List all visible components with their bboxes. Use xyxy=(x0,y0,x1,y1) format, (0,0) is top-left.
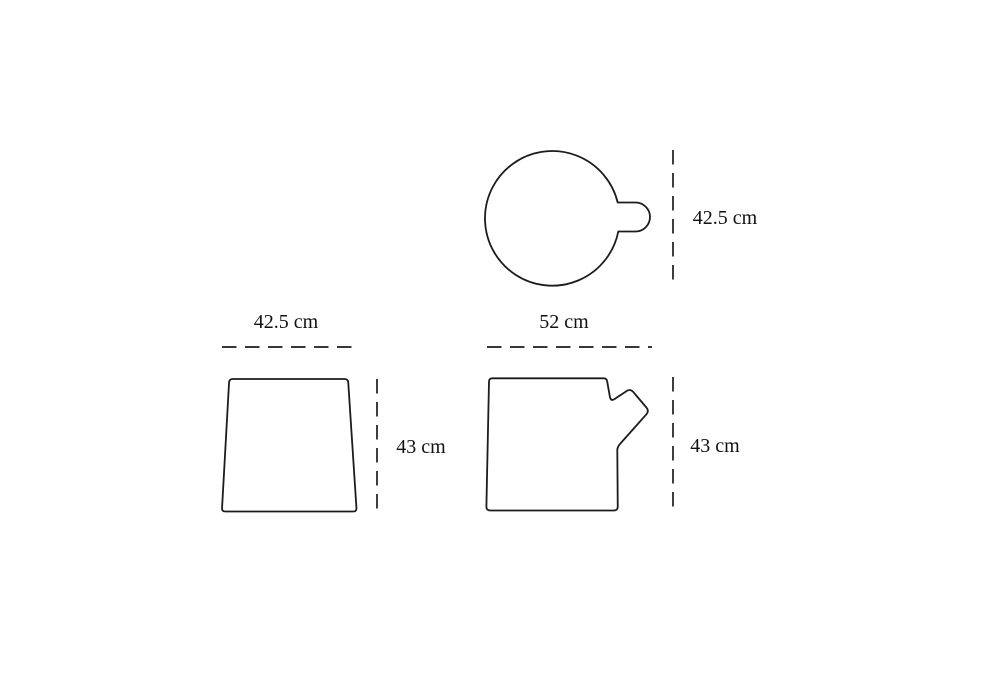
top-view-height-label: 42.5 cm xyxy=(693,208,757,228)
dimension-diagram: 42.5 cm 42.5 cm 43 cm 52 cm 43 cm xyxy=(0,0,1000,700)
front-view-width-label: 42.5 cm xyxy=(254,312,318,332)
diagram-drawing xyxy=(0,0,1000,700)
side-view-outline xyxy=(486,378,647,510)
front-view-height-label: 43 cm xyxy=(396,437,445,457)
side-view-width-label: 52 cm xyxy=(539,312,588,332)
top-view-outline xyxy=(485,151,650,286)
side-view-height-label: 43 cm xyxy=(690,436,739,456)
front-view-outline xyxy=(222,379,356,512)
